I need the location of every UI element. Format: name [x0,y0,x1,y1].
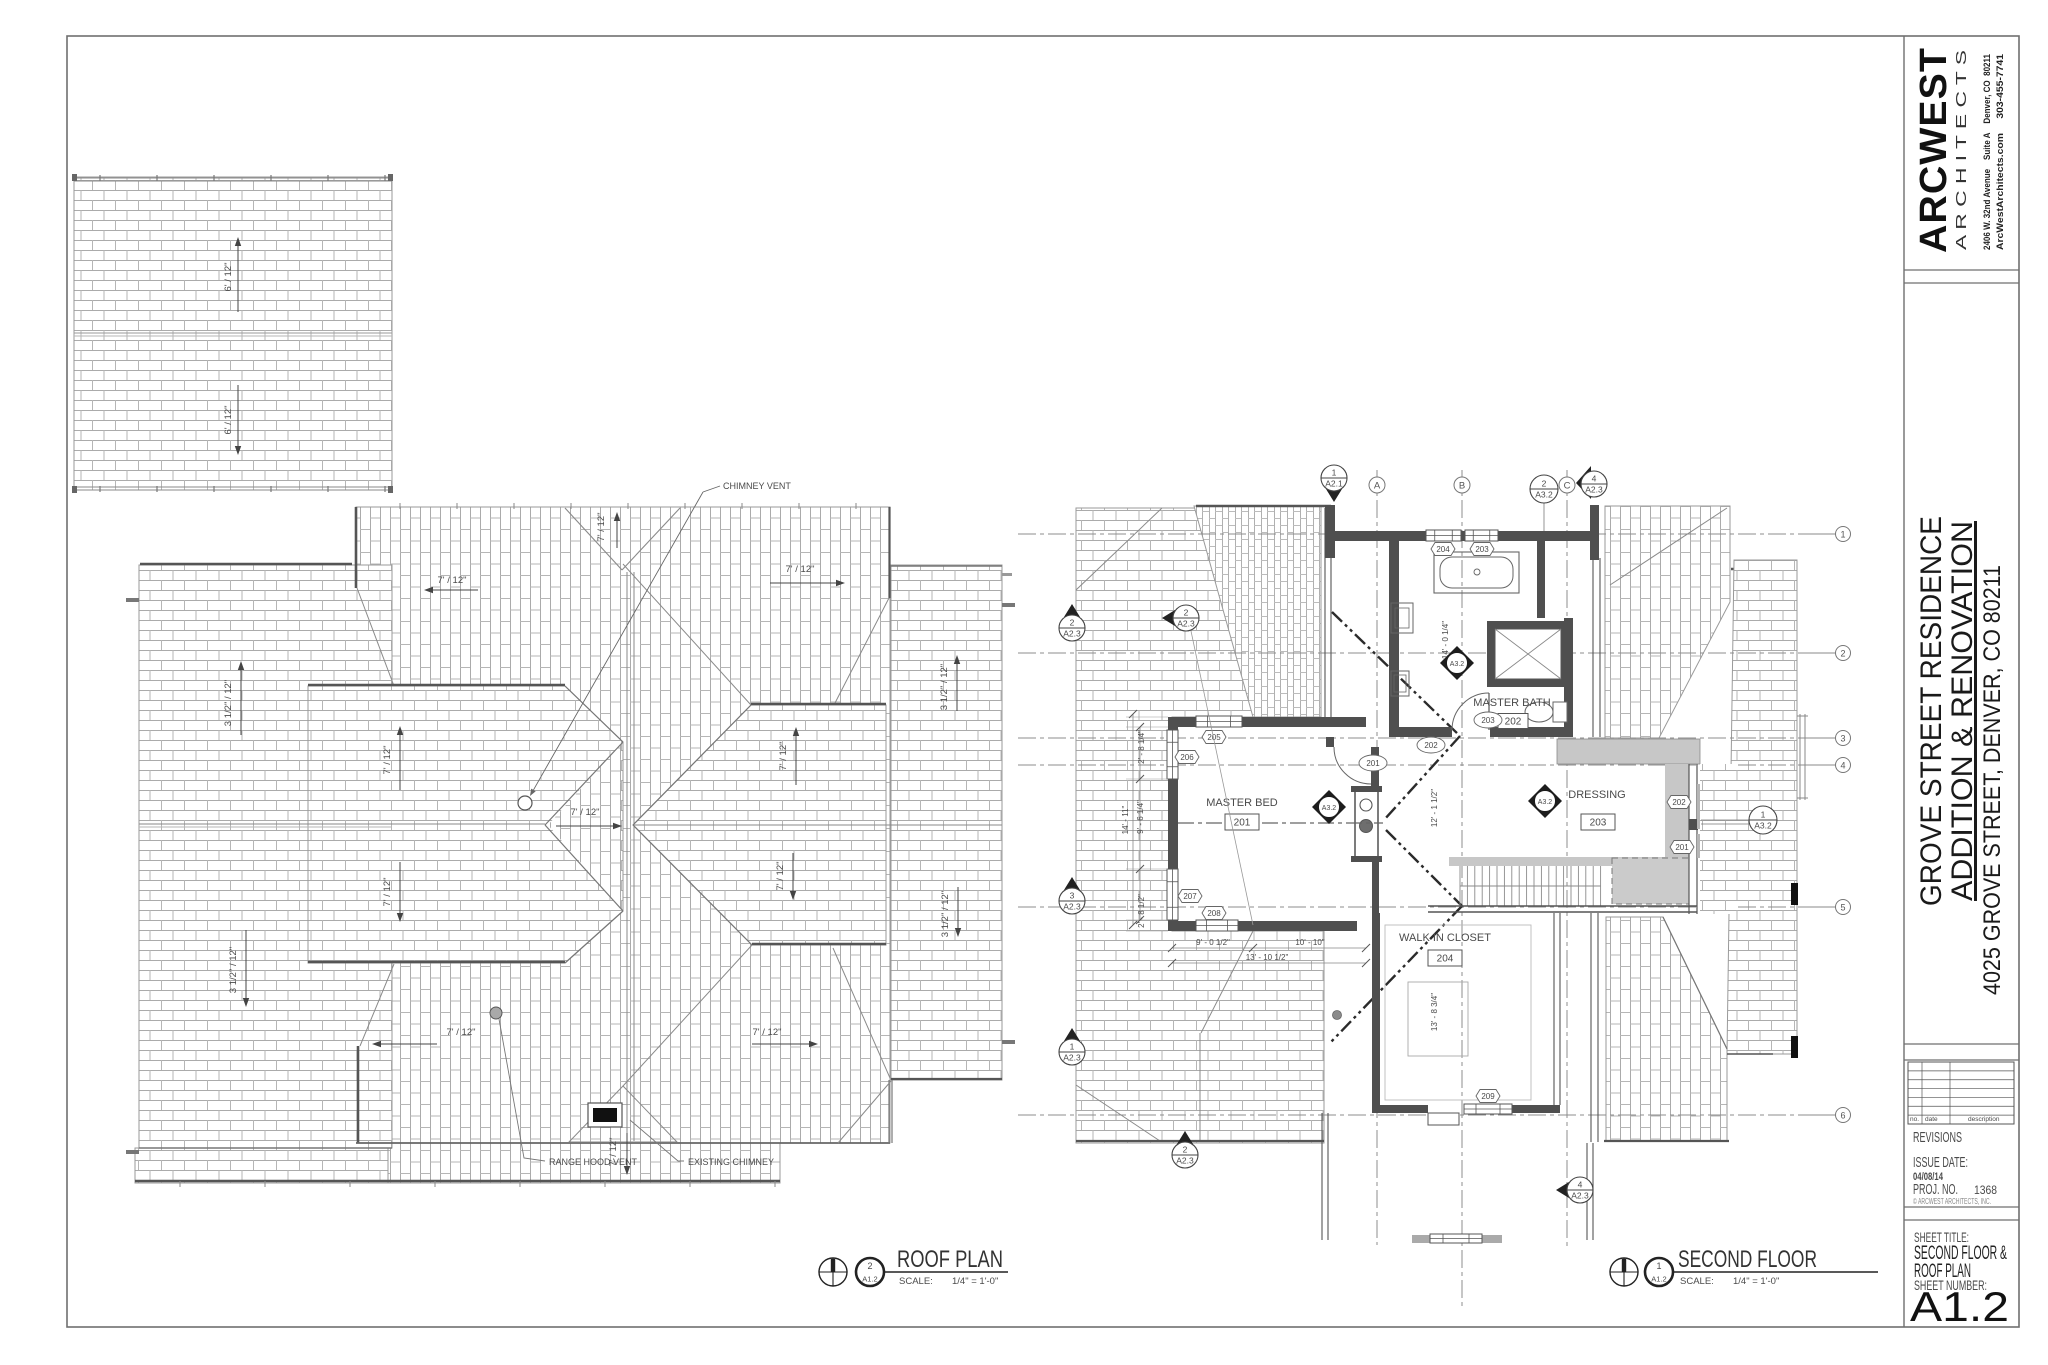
svg-text:7' / 12": 7' / 12" [596,513,607,542]
svg-text:ROOF PLAN: ROOF PLAN [897,1246,1003,1273]
svg-text:4: 4 [1578,1180,1583,1190]
svg-text:2: 2 [1840,649,1845,659]
svg-text:A3.2: A3.2 [1450,661,1465,668]
svg-text:SCALE:: SCALE: [1680,1276,1714,1287]
svg-text:A: A [1374,481,1381,492]
svg-text:WALK IN CLOSET: WALK IN CLOSET [1399,932,1491,944]
svg-text:A2.3: A2.3 [1571,1191,1589,1201]
svg-text:201: 201 [1234,818,1251,829]
svg-text:3 1/2" / 12": 3 1/2" / 12" [939,664,950,710]
svg-text:A2.3: A2.3 [1177,619,1195,629]
svg-text:A2.3: A2.3 [1176,1156,1194,1166]
svg-text:2' - 8 1/4": 2' - 8 1/4" [1137,730,1146,764]
svg-text:207: 207 [1183,892,1197,901]
svg-text:EXISTING CHIMNEY: EXISTING CHIMNEY [688,1157,774,1167]
svg-text:3 1/2" / 12": 3 1/2" / 12" [228,947,239,993]
svg-text:7' / 12": 7' / 12" [571,807,600,818]
svg-text:4025 GROVE STREET, DENVER, CO: 4025 GROVE STREET, DENVER, CO 80211 [1979,565,2006,995]
svg-text:6: 6 [1840,1111,1845,1121]
svg-text:A R C H I T E C T S: A R C H I T E C T S [1954,50,1970,250]
svg-text:2: 2 [1070,618,1075,628]
svg-text:RANGE HOOD VENT: RANGE HOOD VENT [549,1157,638,1167]
svg-text:2406 W. 32nd Avenue Suite A: 2406 W. 32nd Avenue Suite A Denver, CO 8… [1982,54,1992,250]
svg-text:7' / 12": 7' / 12" [753,1027,782,1038]
svg-text:1/4" = 1'-0": 1/4" = 1'-0" [952,1276,998,1287]
svg-text:A2.1: A2.1 [1325,479,1343,489]
svg-text:A3.2: A3.2 [1535,490,1553,500]
svg-text:CHIMNEY VENT: CHIMNEY VENT [723,481,791,491]
svg-text:A1.2: A1.2 [1651,1275,1666,1284]
svg-text:1368: 1368 [1974,1183,1997,1197]
svg-text:A2.3: A2.3 [1063,1053,1081,1063]
svg-text:203: 203 [1481,716,1495,725]
svg-text:7' / 12": 7' / 12" [775,862,786,891]
svg-text:1: 1 [1332,468,1337,478]
svg-text:203: 203 [1475,545,1489,554]
svg-text:B: B [1459,481,1465,492]
svg-text:2: 2 [1184,608,1189,618]
svg-text:9' - 0 1/2": 9' - 0 1/2" [1196,938,1230,947]
svg-text:201: 201 [1366,759,1380,768]
svg-text:14' - 11": 14' - 11" [1121,806,1130,835]
svg-text:7' / 12": 7' / 12" [382,746,393,775]
svg-text:201: 201 [1675,843,1689,852]
svg-text:A1.2: A1.2 [1910,1283,2009,1330]
svg-text:202: 202 [1672,798,1686,807]
svg-text:A2.3: A2.3 [1585,485,1603,495]
svg-text:6' / 12": 6' / 12" [223,263,234,292]
svg-text:PROJ. NO.: PROJ. NO. [1913,1181,1958,1198]
svg-text:12' - 1 1/2": 12' - 1 1/2" [1430,789,1439,827]
svg-text:7' / 12": 7' / 12" [447,1027,476,1038]
svg-text:3 1/2" / 12": 3 1/2" / 12" [940,891,951,937]
svg-text:GROVE STREET RESIDENCE: GROVE STREET RESIDENCE [1915,516,1948,906]
svg-text:209: 209 [1481,1092,1495,1101]
svg-text:204: 204 [1436,545,1450,554]
svg-text:© ARCWEST ARCHITECTS, INC.: © ARCWEST ARCHITECTS, INC. [1913,1197,1991,1206]
svg-text:ARCWEST: ARCWEST [1913,47,1955,253]
svg-text:7' / 12": 7' / 12" [778,742,789,771]
svg-text:1/4" = 1'-0": 1/4" = 1'-0" [1733,1276,1779,1287]
svg-text:3: 3 [1840,734,1845,744]
svg-text:3 1/2" / 12": 3 1/2" / 12" [223,680,234,726]
svg-text:A1.2: A1.2 [862,1275,877,1284]
svg-text:7' / 12": 7' / 12" [608,1138,619,1167]
svg-text:MASTER BATH: MASTER BATH [1473,697,1550,709]
svg-text:description: description [1968,1116,2000,1123]
svg-text:7' / 12": 7' / 12" [438,575,467,586]
svg-text:6' / 12": 6' / 12" [223,406,234,435]
svg-text:1: 1 [1070,1042,1075,1052]
svg-text:DRESSING: DRESSING [1568,789,1625,801]
svg-text:204: 204 [1437,954,1454,965]
svg-text:2' - 8 1/2": 2' - 8 1/2" [1137,894,1146,928]
svg-text:A3.2: A3.2 [1754,821,1772,831]
svg-text:206: 206 [1180,753,1194,762]
svg-text:1: 1 [1840,530,1845,540]
svg-text:1: 1 [1761,810,1766,820]
svg-text:4: 4 [1840,761,1845,771]
svg-text:202: 202 [1424,741,1438,750]
svg-text:13' - 8 3/4": 13' - 8 3/4" [1430,993,1439,1031]
svg-text:2: 2 [1183,1145,1188,1155]
svg-text:208: 208 [1207,909,1221,918]
svg-text:9' - 6 1/4": 9' - 6 1/4" [1136,800,1145,834]
svg-text:A3.2: A3.2 [1322,805,1337,812]
svg-text:SECOND FLOOR: SECOND FLOOR [1678,1246,1817,1273]
svg-text:A2.3: A2.3 [1063,629,1081,639]
svg-text:202: 202 [1505,717,1522,728]
svg-text:4: 4 [1592,474,1597,484]
svg-text:7' / 12": 7' / 12" [382,878,393,907]
svg-text:2: 2 [1542,479,1547,489]
svg-text:2: 2 [867,1261,872,1271]
svg-text:C: C [1564,481,1571,492]
svg-text:A2.3: A2.3 [1063,902,1081,912]
svg-text:ADDITION & RENOVATION: ADDITION & RENOVATION [1946,521,1979,901]
svg-text:date: date [1925,1116,1938,1123]
svg-text:ISSUE DATE:: ISSUE DATE: [1913,1154,1968,1171]
svg-text:1: 1 [1656,1261,1661,1271]
svg-text:no.: no. [1910,1116,1919,1123]
svg-text:10' - 10": 10' - 10" [1295,938,1324,947]
svg-text:203: 203 [1590,818,1607,829]
svg-text:SCALE:: SCALE: [899,1276,933,1287]
svg-text:MASTER BED: MASTER BED [1206,797,1278,809]
svg-text:5: 5 [1840,903,1845,913]
svg-text:A3.2: A3.2 [1538,799,1553,806]
svg-text:ArcWestArchitects.com 303-: ArcWestArchitects.com 303-455-7741 [1995,54,2005,250]
svg-text:3: 3 [1070,891,1075,901]
svg-text:REVISIONS: REVISIONS [1913,1129,1962,1146]
svg-text:14' - 0 1/4": 14' - 0 1/4" [1441,621,1450,659]
svg-text:13' - 10 1/2": 13' - 10 1/2" [1246,953,1289,962]
svg-text:7' / 12": 7' / 12" [786,564,815,575]
